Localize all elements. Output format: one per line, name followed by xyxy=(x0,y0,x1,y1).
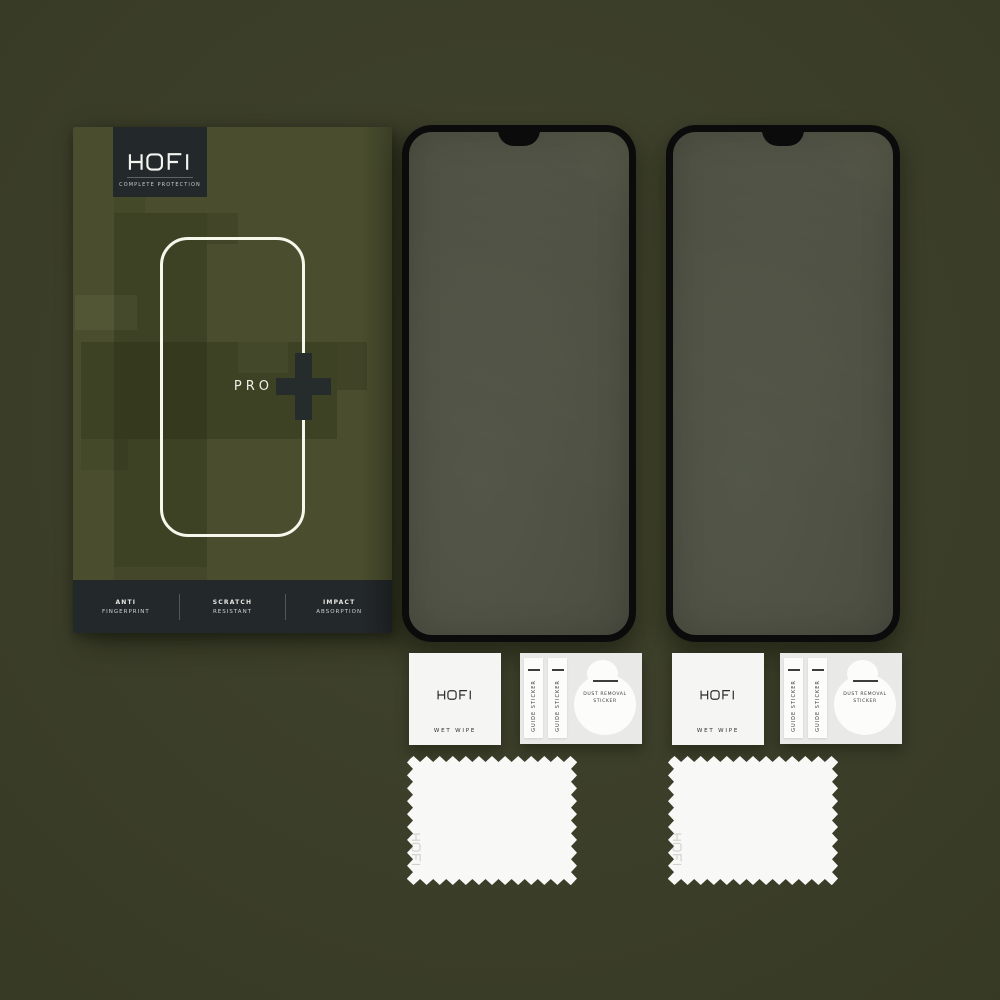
glass-surface xyxy=(673,132,893,635)
guide-sticker-strip: GUIDE STICKER xyxy=(524,658,543,738)
screen-protector-1 xyxy=(402,125,636,642)
product-box: COMPLETE PROTECTION PRO ANTI FINGERPRINT… xyxy=(73,127,392,633)
mosaic-tile xyxy=(75,295,137,330)
hofi-logo-icon xyxy=(700,690,736,700)
dust-removal-sticker: DUST REMOVAL STICKER xyxy=(834,660,896,735)
guide-sticker-strip: GUIDE STICKER xyxy=(808,658,827,738)
sticker-line xyxy=(853,680,878,682)
sticker-line xyxy=(788,669,800,671)
cleaning-cloth xyxy=(668,756,838,885)
sticker-line xyxy=(593,680,618,682)
wet-wipe-label: WET WIPE xyxy=(697,728,739,734)
sticker-line xyxy=(552,669,564,671)
wet-wipe-label: WET WIPE xyxy=(434,728,476,734)
sticker-line xyxy=(528,669,540,671)
wet-wipe-packet: WET WIPE xyxy=(672,653,764,745)
sticker-card: GUIDE STICKER GUIDE STICKER DUST REMOVAL… xyxy=(780,653,902,744)
guide-sticker-strip: GUIDE STICKER xyxy=(548,658,567,738)
hofi-logo-icon xyxy=(437,690,473,700)
plate-divider xyxy=(127,177,193,178)
mosaic-tile xyxy=(81,439,128,470)
guide-sticker-label: GUIDE STICKER xyxy=(555,680,561,732)
hofi-logo-icon xyxy=(672,833,682,867)
features-bar: ANTI FINGERPRINT SCRATCH RESISTANT IMPAC… xyxy=(73,580,392,633)
dust-removal-label: DUST REMOVAL STICKER xyxy=(843,691,886,706)
feature-impact-absorption: IMPACT ABSORPTION xyxy=(286,598,392,615)
hofi-logo-icon xyxy=(411,833,421,867)
mosaic-tile xyxy=(337,342,367,390)
feature-scratch-resistant: SCRATCH RESISTANT xyxy=(180,598,286,615)
sticker-line xyxy=(812,669,824,671)
brand-tagline: COMPLETE PROTECTION xyxy=(119,182,201,188)
guide-sticker-label: GUIDE STICKER xyxy=(791,680,797,732)
dust-removal-label: DUST REMOVAL STICKER xyxy=(583,691,626,706)
cleaning-cloth xyxy=(407,756,577,885)
sticker-card: GUIDE STICKER GUIDE STICKER DUST REMOVAL… xyxy=(520,653,642,744)
brand-plate: COMPLETE PROTECTION xyxy=(113,127,207,197)
screen-protector-2 xyxy=(666,125,900,642)
wet-wipe-packet: WET WIPE xyxy=(409,653,501,745)
feature-anti-fingerprint: ANTI FINGERPRINT xyxy=(73,598,179,615)
guide-sticker-label: GUIDE STICKER xyxy=(815,680,821,732)
hofi-logo-icon xyxy=(128,153,192,171)
guide-sticker-label: GUIDE STICKER xyxy=(531,680,537,732)
product-photo: COMPLETE PROTECTION PRO ANTI FINGERPRINT… xyxy=(0,0,1000,1000)
guide-sticker-strip: GUIDE STICKER xyxy=(784,658,803,738)
glass-surface xyxy=(409,132,629,635)
model-label: PRO xyxy=(213,380,273,393)
dust-removal-sticker: DUST REMOVAL STICKER xyxy=(574,660,636,735)
